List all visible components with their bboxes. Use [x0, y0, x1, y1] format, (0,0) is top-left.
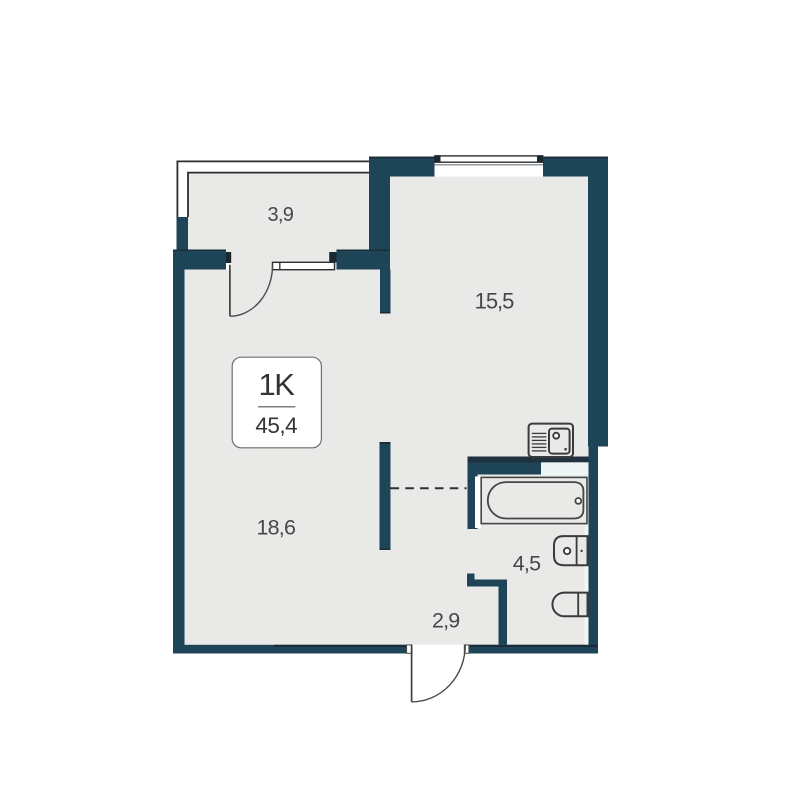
svg-text:3,9: 3,9 [267, 204, 293, 226]
svg-text:1K: 1K [259, 367, 296, 402]
svg-text:18,6: 18,6 [256, 516, 295, 540]
svg-text:4,5: 4,5 [513, 551, 541, 575]
svg-text:15,5: 15,5 [475, 289, 515, 314]
svg-text:2,9: 2,9 [432, 609, 460, 633]
svg-text:45,4: 45,4 [255, 413, 297, 438]
